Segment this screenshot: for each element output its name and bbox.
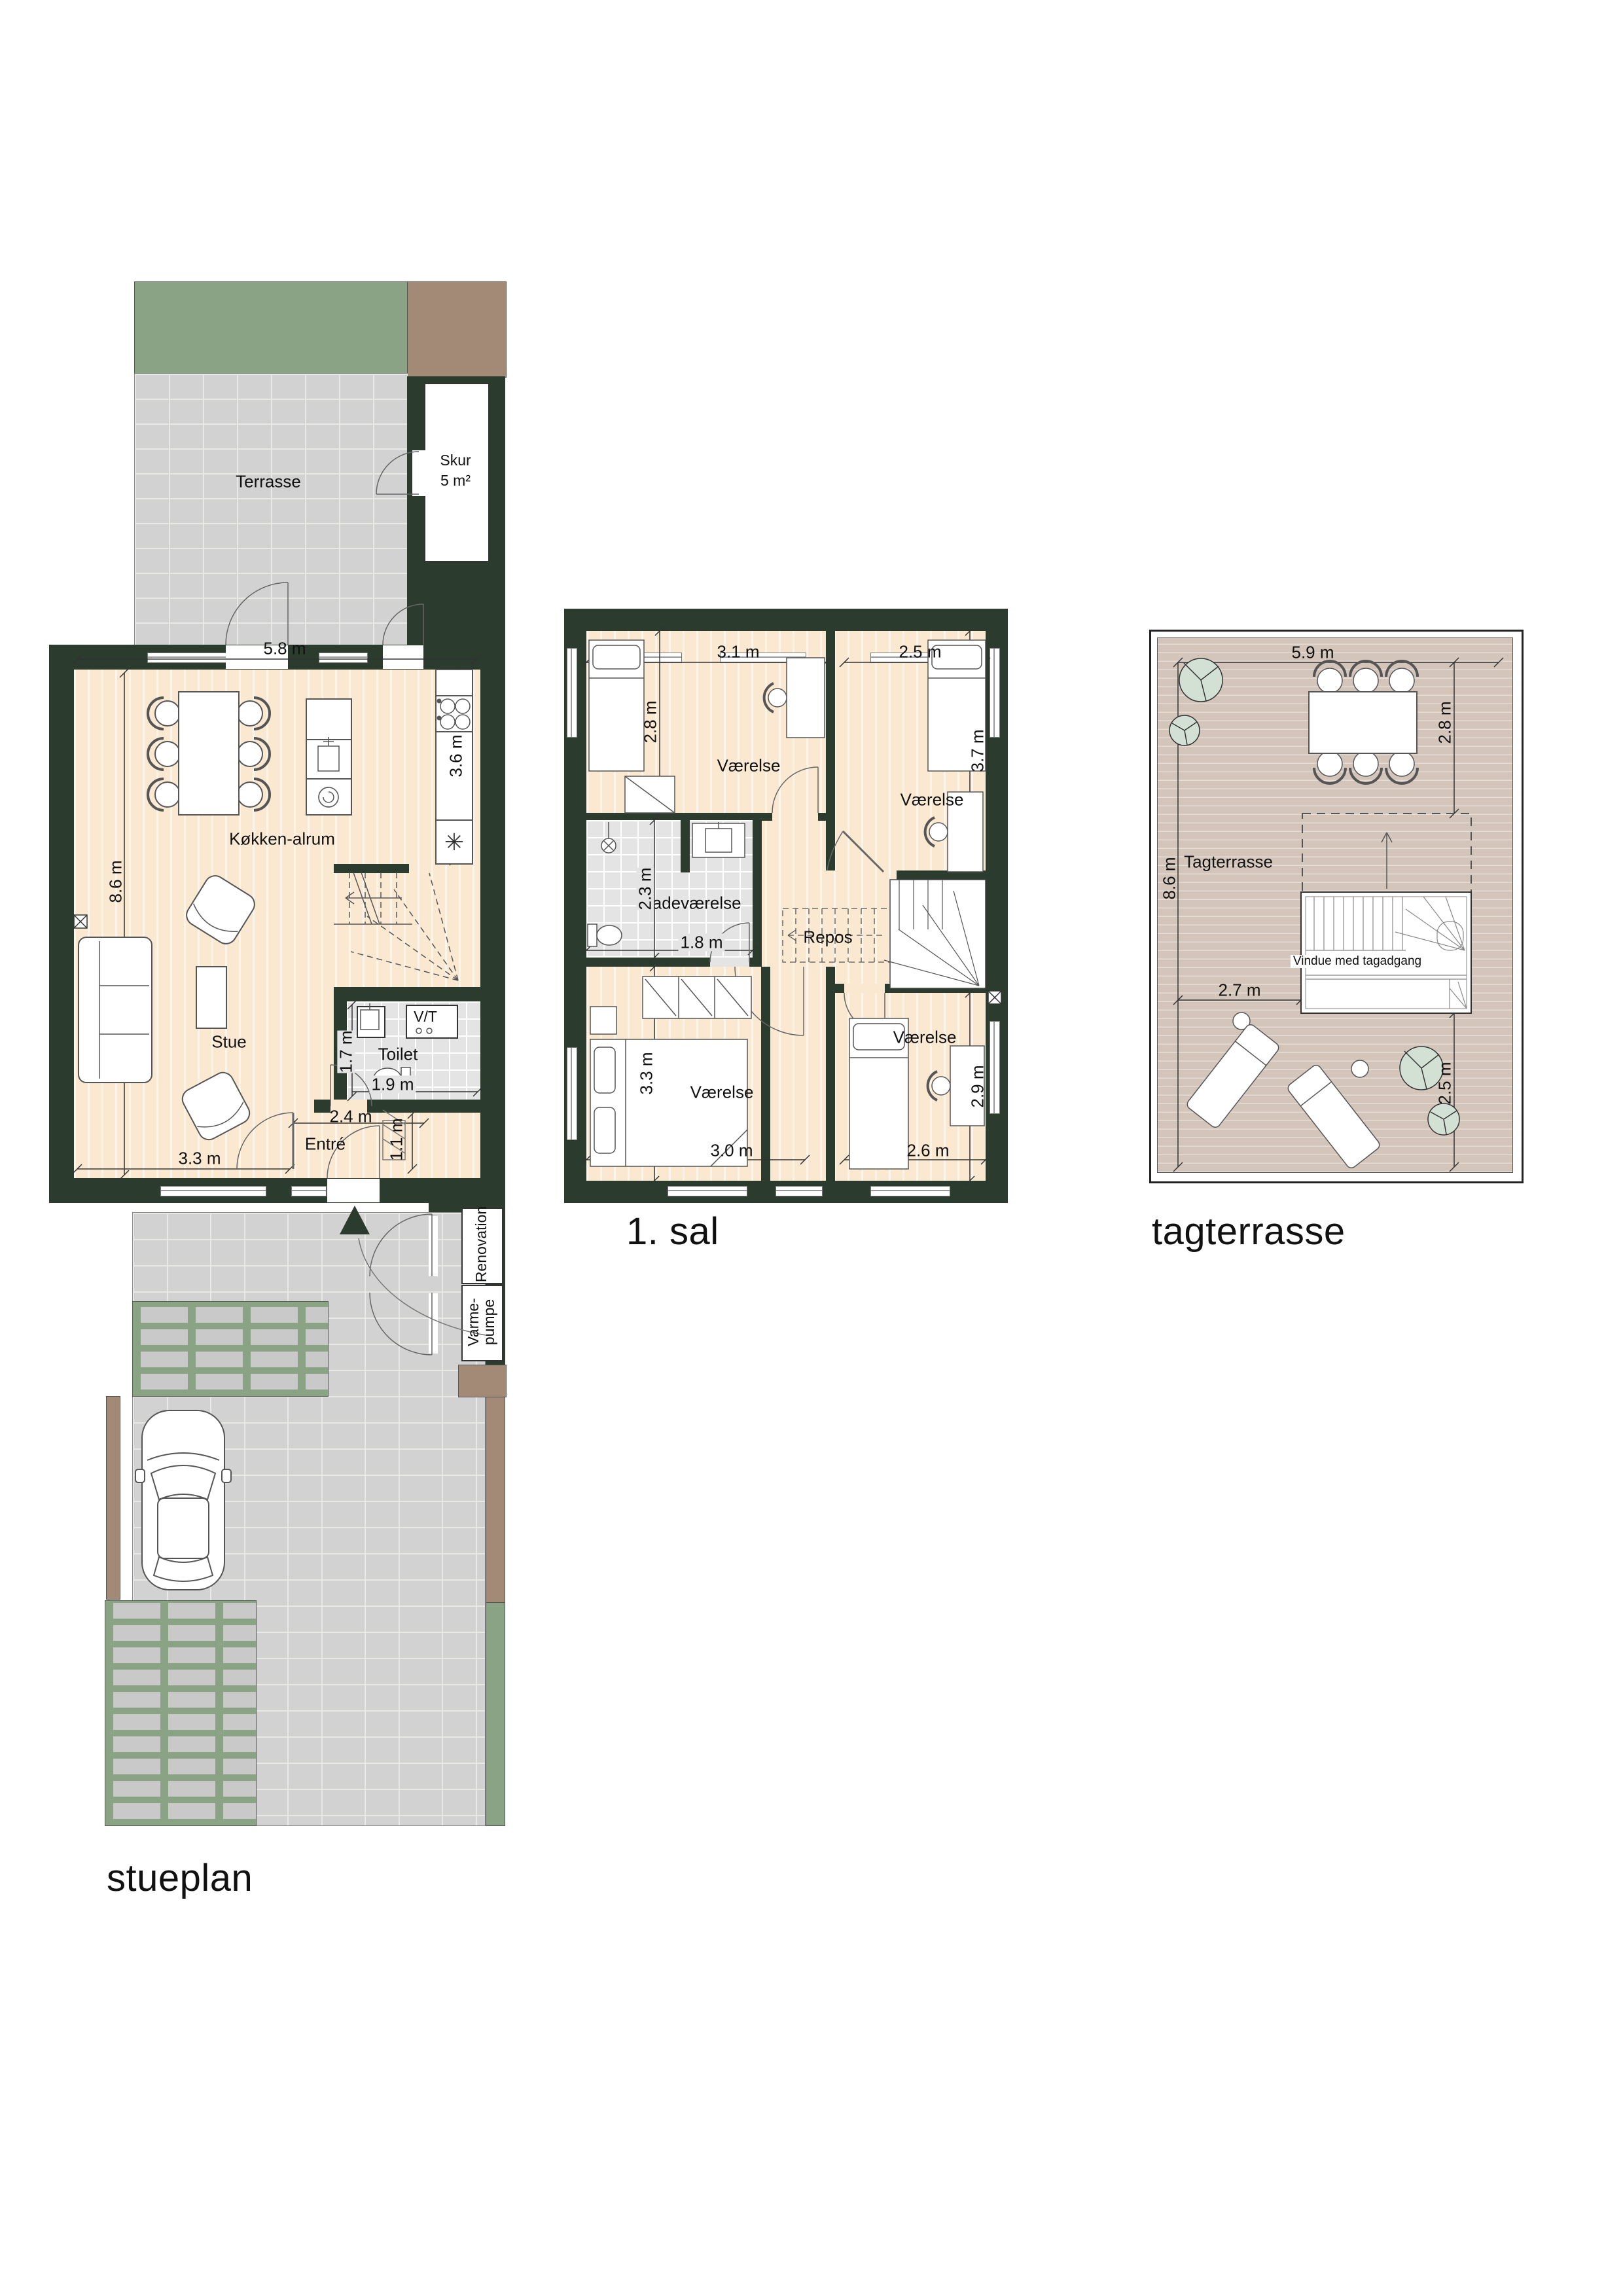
ff-bad-label: Badeværelse [641,894,741,912]
kitchen-island [306,699,351,815]
skur-area-label: 5 m² [440,473,471,488]
ff-bath-fixtures [588,822,745,946]
ff-room-se-label: Værelse [893,1028,957,1046]
renovation-label: Renovation [473,1206,489,1282]
dining-set [148,692,270,815]
ff-room-ne-label: Værelse [901,791,964,808]
ff-dim-2-6: 2.6 m [906,1141,949,1159]
ff-dim-3-7: 3.7 m [969,729,986,772]
ff-dim-3-3: 3.3 m [637,1052,655,1094]
roof-dim-5-9: 5.9 m [1291,643,1334,661]
vent-marker-ff [988,991,1001,1004]
entre-label: Entré [305,1135,346,1153]
toilet-label: Toilet [378,1045,418,1063]
ff-dim-1-8: 1.8 m [678,933,724,951]
roof-dining-set [1309,661,1418,783]
dim-5-8: 5.8 m [263,639,306,657]
skur-label: Skur [440,452,471,468]
stairs-ground [334,872,458,980]
roof-access-zone [1302,814,1471,892]
stue-label: Stue [211,1033,247,1050]
heatpump-label-line1: Varme- [465,1298,482,1346]
roof-tagterrasse-label: Tagterrasse [1184,853,1273,870]
kokken-alrum-label: Køkken-alrum [229,830,335,848]
ff-dim-2-5: 2.5 m [899,643,941,660]
dim-3-6: 3.6 m [446,734,466,778]
vent-marker-ground [74,915,87,928]
roof-dim-2-7: 2.7 m [1218,981,1260,999]
dim-1-9: 1.9 m [369,1075,416,1093]
ff-dim-2-9: 2.9 m [969,1065,986,1107]
terrasse-label: Terrasse [236,473,301,490]
ff-dim-2-3: 2.3 m [636,867,654,910]
ff-dim-3-1: 3.1 m [717,643,759,660]
ff-dim-2-8: 2.8 m [641,700,659,743]
roof-dim-2-8: 2.8 m [1436,701,1454,744]
dim-3-3: 3.3 m [178,1149,221,1167]
dim-2-4: 2.4 m [329,1107,372,1125]
stue-furniture [79,872,259,1143]
stueplan-dimensions [73,655,482,1179]
ff-repos-label: Repos [803,928,852,946]
dim-8-6: 8.6 m [107,860,124,903]
roof-loungers [1185,1013,1382,1170]
roof-dim-2-5: 2.5 m [1436,1062,1454,1104]
roof-vindue-label: Vindue med tagadgang [1291,955,1424,968]
roof-dim-8-6: 8.6 m [1160,857,1178,899]
stueplan-title: stueplan [107,1856,253,1900]
heatpump-label: Varme-pumpe [465,1298,497,1346]
linework-overlay [0,0,1623,2296]
ff-room-nw-label: Værelse [717,757,781,774]
heatpump-label-line2: pumpe [480,1299,497,1345]
car [135,1410,231,1590]
ff-dim-3-0: 3.0 m [710,1141,753,1159]
entrance-arrow [340,1206,370,1234]
ff-room-sw-label: Værelse [690,1083,754,1101]
dim-1-1: 1.1 m [387,1118,405,1160]
vt-label: V/T [414,1009,437,1024]
freezer-icon: ✳ [444,830,464,855]
roof-title: tagterrasse [1152,1210,1346,1253]
roof-stair-window [1301,892,1471,1013]
dim-1-7: 1.7 m [337,1030,355,1073]
first-floor-title: 1. sal [626,1210,719,1253]
